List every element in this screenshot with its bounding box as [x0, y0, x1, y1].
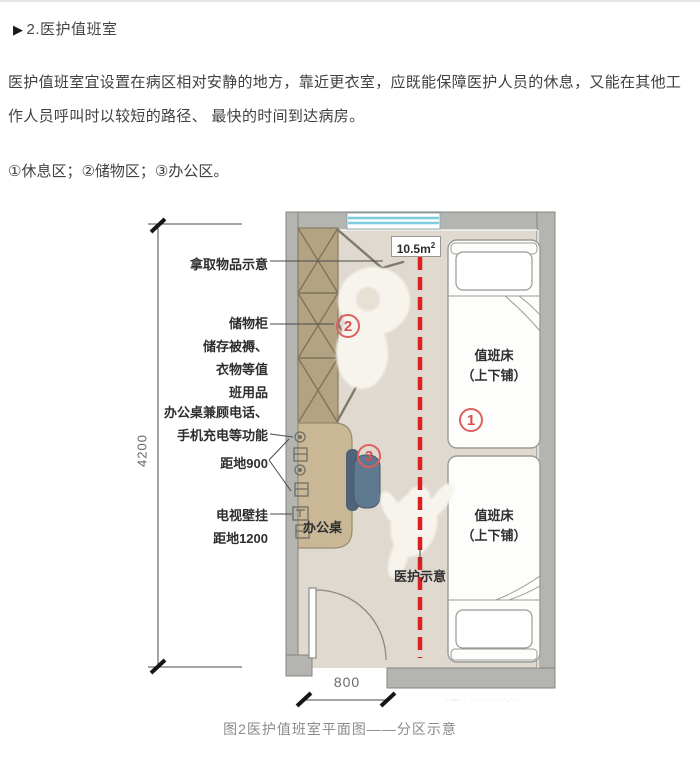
label-tv-line2: 距地1200 — [100, 527, 268, 550]
label-take-items: 拿取物品示意 — [100, 253, 268, 276]
label-desk-function: 办公桌兼顾电话、 手机充电等功能 — [100, 401, 268, 447]
wall-bottom-left — [286, 655, 312, 676]
label-tv-line1: 电视壁挂 — [100, 504, 268, 527]
room-area-badge: 10.5m2 — [391, 236, 441, 257]
pillow-top-bed — [456, 252, 532, 290]
label-bed-top-line2: （上下铺） — [448, 366, 540, 386]
door-leaf — [309, 588, 316, 658]
duty-bed-bottom — [448, 456, 540, 662]
body-paragraph: 医护值班室宜设置在病区相对安静的地方，靠近更衣室，应既能保障医护人员的休息，又能… — [8, 66, 696, 134]
wall-bottom-right — [387, 668, 555, 688]
label-cabinet: 储物柜 储存被褥、 衣物等值 班用品 — [100, 312, 268, 404]
label-cabinet-line2: 储存被褥、 — [100, 335, 268, 358]
label-desk-function-line2: 手机充电等功能 — [100, 424, 268, 447]
label-bed-bottom-line1: 值班床 — [448, 506, 540, 526]
label-cabinet-line3: 衣物等值 — [100, 358, 268, 381]
label-bed-top: 值班床 （上下铺） — [448, 346, 540, 386]
arrow-bullet-icon: ▶ — [13, 22, 24, 37]
room-area-value: 10.5m — [397, 242, 431, 256]
wall-left — [286, 212, 298, 676]
label-bed-top-line1: 值班床 — [448, 346, 540, 366]
label-staff: 医护示意 — [378, 565, 462, 588]
window — [347, 213, 440, 229]
watermark: ·— · ·········.··· — [446, 694, 576, 704]
zone-marker-2: 2 — [336, 314, 360, 338]
page-top-divider — [0, 0, 700, 2]
dimension-door-width — [297, 693, 395, 706]
zone-legend-line: ①休息区；②储物区；③办公区。 — [8, 160, 228, 181]
label-cabinet-line1: 储物柜 — [100, 312, 268, 335]
dimension-text-800: 800 — [315, 674, 379, 690]
dimension-text-4200: 4200 — [135, 421, 150, 481]
figure-caption: 图2医护值班室平面图——分区示意 — [0, 719, 680, 739]
label-bed-bottom: 值班床 （上下铺） — [448, 506, 540, 546]
zone-marker-3: 3 — [357, 444, 381, 468]
section-heading-text: 2.医护值班室 — [27, 21, 118, 38]
zone-marker-1: 1 — [459, 408, 483, 432]
label-desk: 办公桌 — [303, 516, 353, 539]
label-bed-bottom-line2: （上下铺） — [448, 526, 540, 546]
label-tv: 电视壁挂 距地1200 — [100, 504, 268, 550]
label-desk-function-line1: 办公桌兼顾电话、 — [100, 401, 268, 424]
person-at-cabinet-head — [356, 287, 380, 311]
pillow-bottom-bed — [456, 610, 532, 648]
label-height-900: 距地900 — [100, 452, 268, 475]
floor-plan-figure: 10.5m2 拿取物品示意 储物柜 储存被褥、 衣物等值 班用品 办公桌兼顾电话… — [0, 205, 700, 762]
section-heading: ▶2.医护值班室 — [13, 18, 118, 39]
room-area-sup: 2 — [431, 241, 435, 250]
